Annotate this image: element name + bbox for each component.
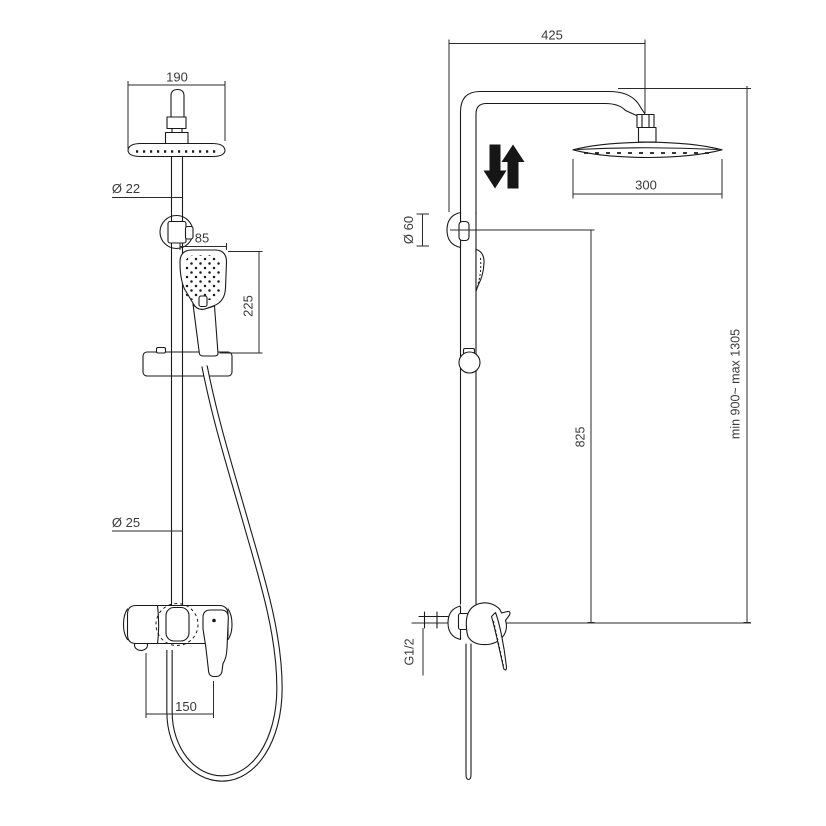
mixer-lever-dot <box>212 619 216 623</box>
front-view: 190 Ø 22 85 225 Ø 25 <box>112 70 280 779</box>
dim-head-dia-label: 300 <box>635 178 657 193</box>
dim-height-range-label: min 900~ max 1305 <box>729 329 743 439</box>
dim-handshower-width-label: 85 <box>195 231 209 246</box>
handshower-handle-front <box>193 304 218 356</box>
dim-mixer-spacing: 150 <box>146 653 214 718</box>
dim-riser-lower-dia-label: Ø 25 <box>112 515 140 530</box>
top-nut <box>167 117 186 129</box>
mixer-escutcheon-front <box>166 608 189 642</box>
dim-height-range: min 900~ max 1305 <box>618 86 751 623</box>
handshower-mode-button <box>199 296 207 307</box>
overhead-shower-front <box>128 144 225 157</box>
bracket-latch-front <box>186 227 194 240</box>
dim-mixer-spacing-label: 150 <box>175 699 197 714</box>
bracket-clamp-front <box>168 222 186 244</box>
top-stem <box>172 129 182 133</box>
dim-bracket-dia: Ø 60 <box>401 214 591 246</box>
dim-handshower-length-label: 225 <box>241 295 256 317</box>
dim-bracket-to-inlet-label: 825 <box>574 427 588 448</box>
top-diverter-cap <box>171 90 184 120</box>
mixer-side <box>448 603 510 670</box>
dim-riser-upper-dia-label: Ø 22 <box>112 181 140 196</box>
inlet-nipple <box>419 612 448 628</box>
shower-hose-side <box>466 644 471 780</box>
head-nut-side <box>637 115 654 128</box>
side-view: 425 300 Ø 60 825 <box>401 28 751 780</box>
slider-holder-front <box>143 352 232 376</box>
technical-drawing-page: 190 Ø 22 85 225 Ø 25 <box>0 0 826 826</box>
head-mount-side <box>639 128 657 143</box>
handshower-spray-dots <box>185 255 221 300</box>
dim-arm-reach-label: 425 <box>541 28 563 43</box>
dim-bracket-dia-label: Ø 60 <box>401 216 416 244</box>
dim-head-dia: 300 <box>573 159 722 199</box>
mixer-front <box>124 604 233 677</box>
shower-hose-front <box>170 366 280 779</box>
riser-pipe-side <box>461 212 477 604</box>
shower-drawing-svg: 190 Ø 22 85 225 Ø 25 <box>0 0 826 826</box>
handshower-side-profile <box>476 250 484 292</box>
dim-head-width-label: 190 <box>166 70 188 85</box>
arrow-up-icon <box>502 145 525 189</box>
overhead-shower-side <box>573 142 722 157</box>
dim-inlet-thread-label: G1/2 <box>403 638 417 665</box>
dim-arm-reach: 425 <box>449 28 645 213</box>
bracket-pivot-side <box>459 222 469 241</box>
dim-inlet-thread: G1/2 <box>403 628 424 676</box>
mixer-body-side <box>466 603 510 645</box>
head-connector-front <box>166 133 189 144</box>
slider-knob-front <box>157 348 166 354</box>
slider-wheel-side <box>459 352 480 373</box>
dim-bracket-to-inlet: 825 <box>574 230 595 623</box>
arrow-down-icon <box>484 145 507 189</box>
